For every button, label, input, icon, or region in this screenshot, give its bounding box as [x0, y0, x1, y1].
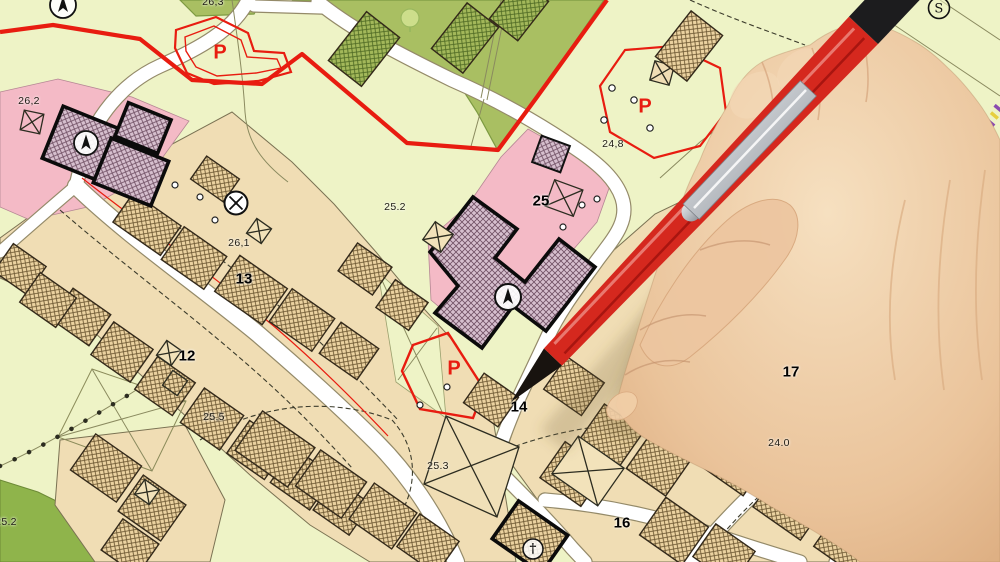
elevation-label: 24,8 — [602, 138, 624, 150]
parcel-number: 16 — [614, 515, 631, 532]
cadastral-map-scene: 26,3 26,2 P P P 24,8 25 25.2 26,1 13 12 … — [0, 0, 1000, 562]
map-drawing — [0, 0, 1000, 562]
parking-label: P — [213, 42, 226, 65]
parking-label: P — [447, 358, 460, 381]
north-arrow-icon — [74, 131, 98, 155]
elevation-label: 25.3 — [427, 460, 449, 472]
parcel-number: 17 — [783, 364, 800, 381]
elevation-label: 24.0 — [768, 437, 790, 449]
parcel-number: 14 — [511, 399, 528, 416]
parcel-number: 25 — [533, 193, 550, 210]
north-arrow-icon — [495, 284, 521, 310]
elevation-label: 26,3 — [202, 0, 224, 8]
elevation-label: 26,1 — [228, 237, 250, 249]
elevation-label: 25.2 — [0, 516, 17, 528]
survey-point-icon — [225, 192, 248, 215]
elevation-label: 25.2 — [384, 201, 406, 213]
parcel-number: 12 — [179, 348, 196, 365]
s-marker-label: S — [934, 2, 943, 17]
elevation-label: 26,2 — [18, 95, 40, 107]
north-arrow-icon — [50, 0, 76, 18]
parking-label: P — [638, 96, 651, 119]
elevation-label: 25,5 — [203, 411, 225, 423]
parcel-number: 13 — [236, 271, 253, 288]
church-cross-label: † — [529, 542, 536, 557]
